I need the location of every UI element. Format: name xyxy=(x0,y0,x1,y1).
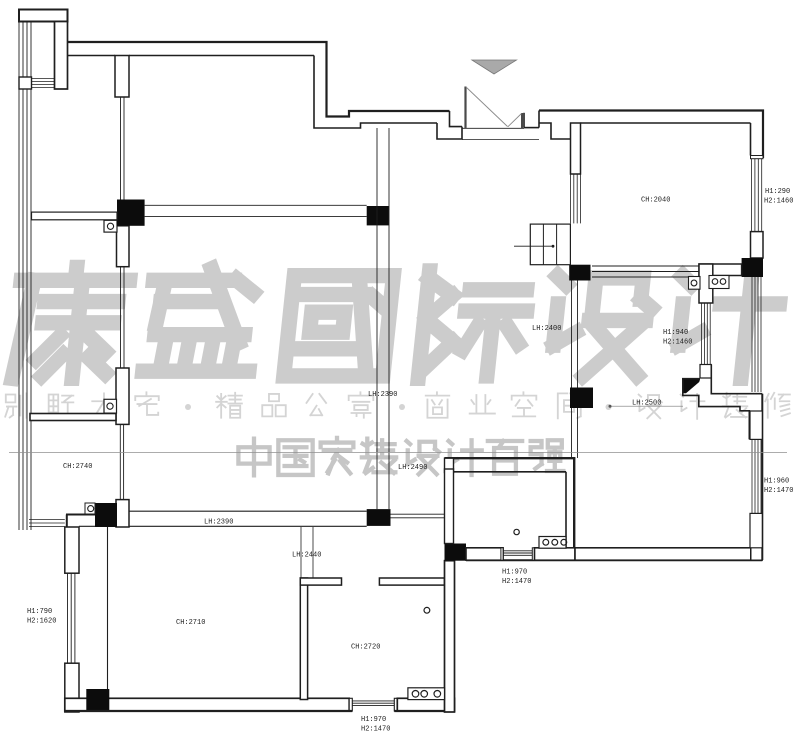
svg-text:H1:960: H1:960 xyxy=(764,478,789,486)
svg-text:LH:2500: LH:2500 xyxy=(632,400,661,408)
svg-text:LH:2490: LH:2490 xyxy=(398,464,427,472)
svg-text:CH:2720: CH:2720 xyxy=(351,644,380,652)
svg-text:H1:940: H1:940 xyxy=(663,329,688,337)
svg-text:LH:2440: LH:2440 xyxy=(292,552,321,560)
svg-text:LH:2390: LH:2390 xyxy=(204,519,233,527)
svg-text:H1:970: H1:970 xyxy=(361,716,386,724)
svg-text:H2:1460: H2:1460 xyxy=(764,198,793,206)
svg-text:CH:2740: CH:2740 xyxy=(63,463,92,471)
svg-text:CH:2040: CH:2040 xyxy=(641,197,670,205)
svg-text:H1:790: H1:790 xyxy=(27,608,52,616)
svg-text:H2:1620: H2:1620 xyxy=(27,618,56,626)
svg-text:CH:2710: CH:2710 xyxy=(176,619,205,627)
svg-text:LH:2390: LH:2390 xyxy=(368,391,397,399)
svg-text:H2:1460: H2:1460 xyxy=(663,339,692,347)
svg-text:H2:1470: H2:1470 xyxy=(764,487,793,495)
svg-text:LH:2400: LH:2400 xyxy=(532,325,561,333)
svg-text:H2:1470: H2:1470 xyxy=(361,726,390,734)
svg-text:H2:1470: H2:1470 xyxy=(502,578,531,586)
svg-text:H1:970: H1:970 xyxy=(502,569,527,577)
svg-text:H1:290: H1:290 xyxy=(765,188,790,196)
